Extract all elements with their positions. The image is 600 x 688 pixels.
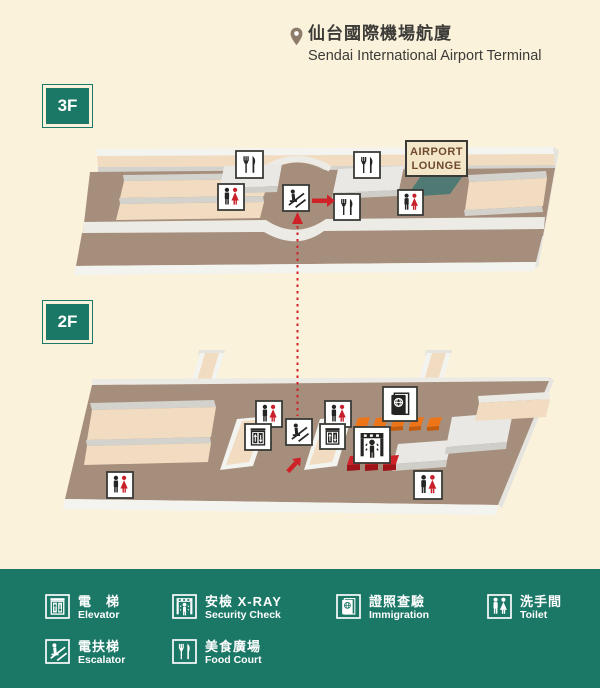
legend-item-escalator: 電扶梯 Escalator (45, 639, 125, 667)
airport-lounge-sign: AIRPORT LOUNGE (406, 141, 467, 176)
legend-label-en: Elevator (78, 609, 120, 622)
elevator-icon (245, 424, 271, 450)
food-court-icon (334, 194, 360, 220)
legend-label-zh: 美食廣場 (205, 639, 262, 654)
food-court-icon (354, 152, 380, 178)
legend-item-security: 安檢 X-RAY Security Check (172, 594, 282, 622)
legend-item-elevator: 電 梯 Elevator (45, 594, 120, 622)
legend-label-en: Toilet (520, 609, 562, 622)
escalator-icon (286, 419, 312, 445)
immigration-icon (336, 594, 361, 619)
lounge-sign-line1: AIRPORT (410, 146, 463, 158)
legend-label-en: Security Check (205, 609, 282, 622)
floor-2f-map (63, 350, 554, 515)
legend-item-food-court: 美食廣場 Food Court (172, 639, 262, 667)
elevator-icon (45, 594, 70, 619)
legend-item-toilet: 洗手間 Toilet (487, 594, 562, 622)
immigration-icon (383, 387, 417, 421)
legend-label-en: Escalator (78, 654, 125, 667)
security-check-icon (354, 427, 390, 463)
escalator-icon (283, 185, 309, 211)
toilet-icon (218, 184, 244, 210)
legend-label-zh: 證照查驗 (369, 594, 429, 609)
legend-label-en: Food Court (205, 654, 262, 667)
food-court-icon (172, 639, 197, 664)
legend-label-zh: 電扶梯 (78, 639, 125, 654)
floor-3f-map: AIRPORT LOUNGE (74, 141, 559, 275)
toilet-icon (398, 190, 423, 215)
legend-label-zh: 安檢 X-RAY (205, 594, 282, 609)
toilet-icon (107, 472, 133, 498)
toilet-icon (487, 594, 512, 619)
toilet-icon (414, 471, 442, 499)
legend-label-zh: 洗手間 (520, 594, 562, 609)
escalator-icon (45, 639, 70, 664)
food-court-icon (236, 151, 263, 178)
legend-label-en: Immigration (369, 609, 429, 622)
legend-label-zh: 電 梯 (78, 594, 120, 609)
airport-floor-map-page: 仙台國際機場航廈 Sendai International Airport Te… (0, 0, 600, 688)
lounge-sign-line2: LOUNGE (411, 160, 461, 172)
security-check-icon (172, 594, 197, 619)
legend-item-immigration: 證照查驗 Immigration (336, 594, 429, 622)
elevator-icon (320, 424, 345, 449)
legend-bar: 電 梯 Elevator 電扶梯 Escalator 安檢 X-RAY Secu… (0, 569, 600, 688)
